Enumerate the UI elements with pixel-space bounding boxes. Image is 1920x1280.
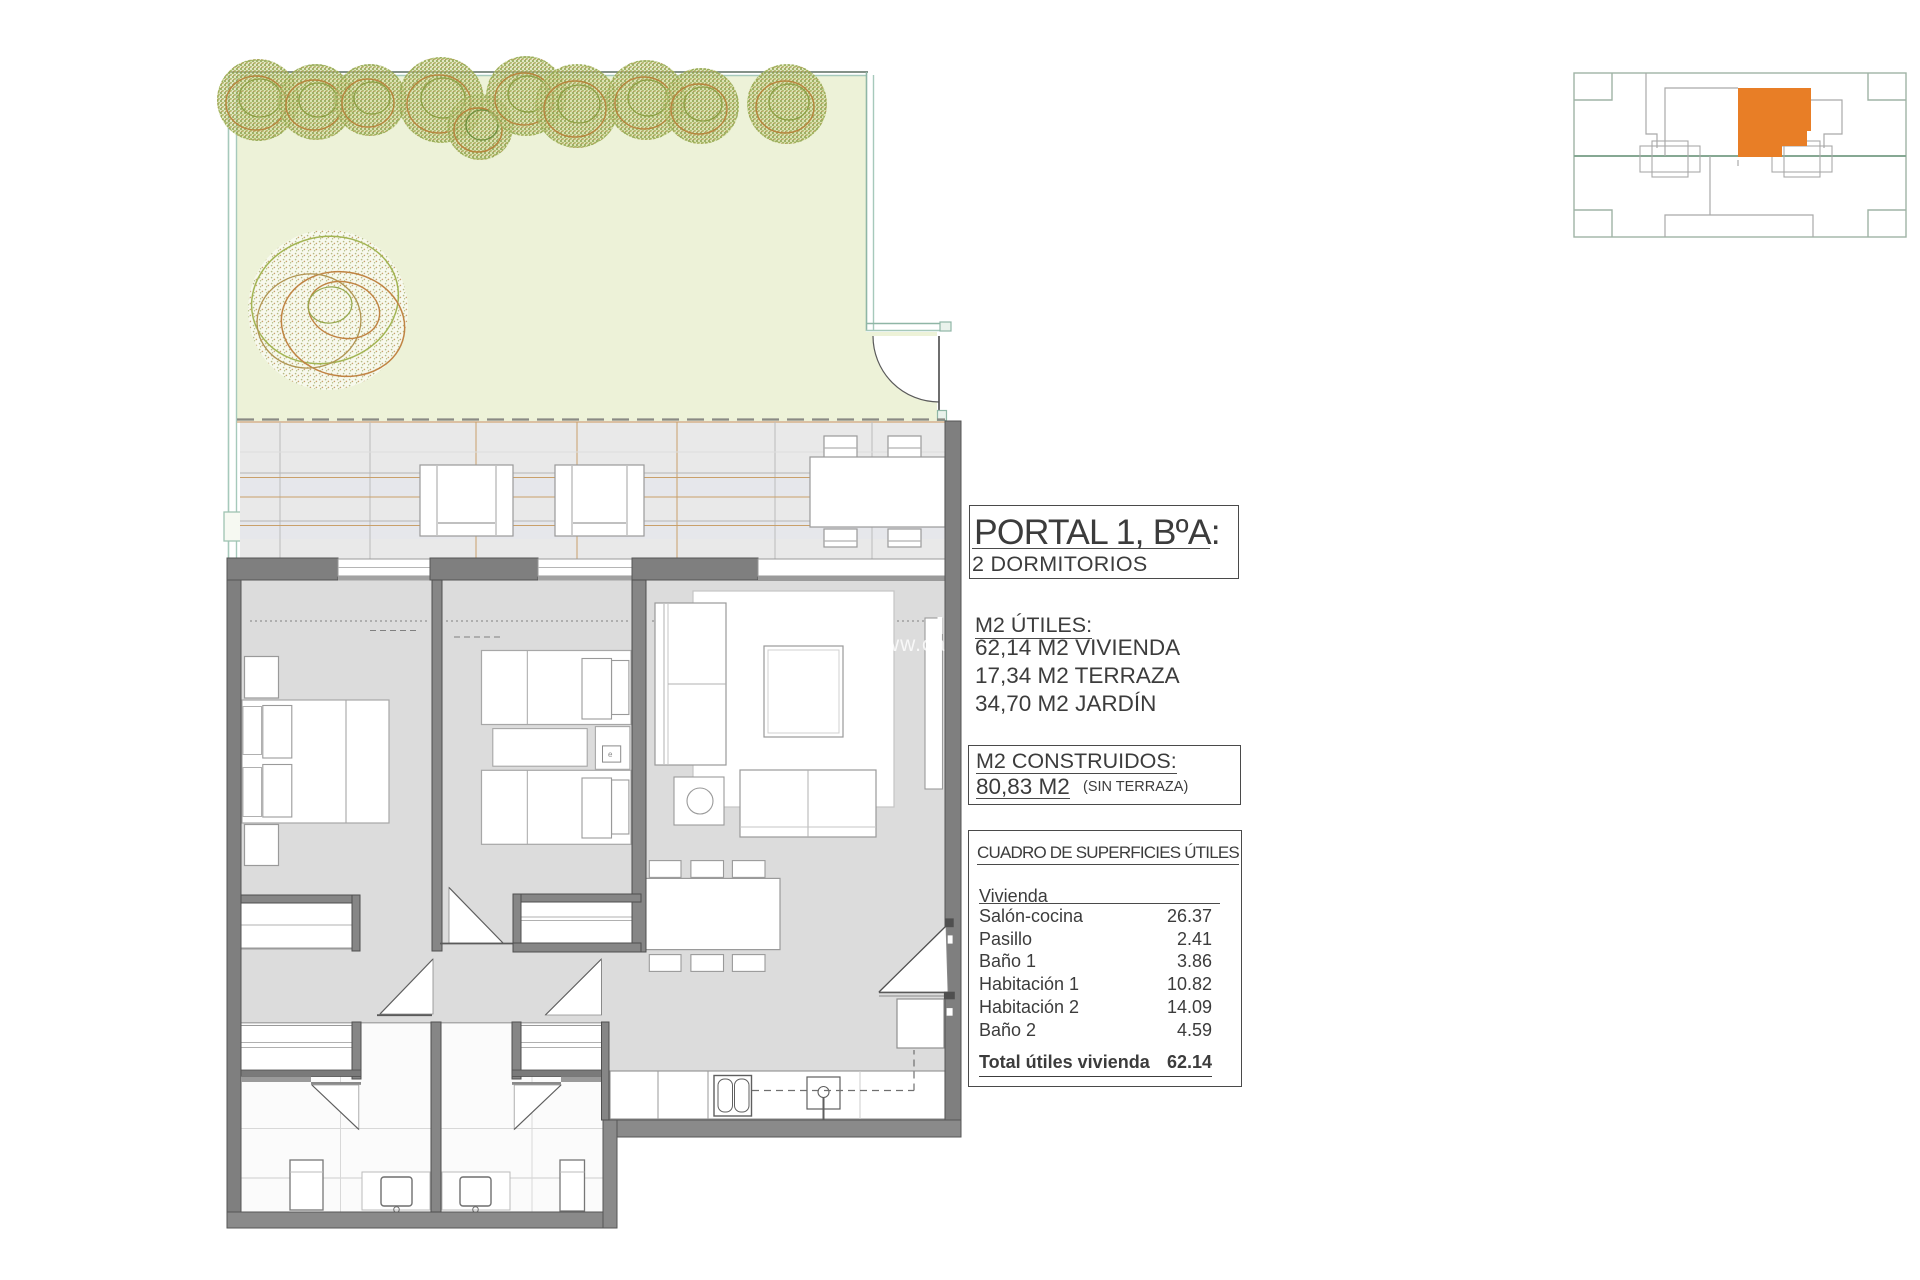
svg-text:e: e — [608, 750, 613, 759]
svg-text:ww.casa-s: ww.casa-s — [883, 633, 990, 656]
